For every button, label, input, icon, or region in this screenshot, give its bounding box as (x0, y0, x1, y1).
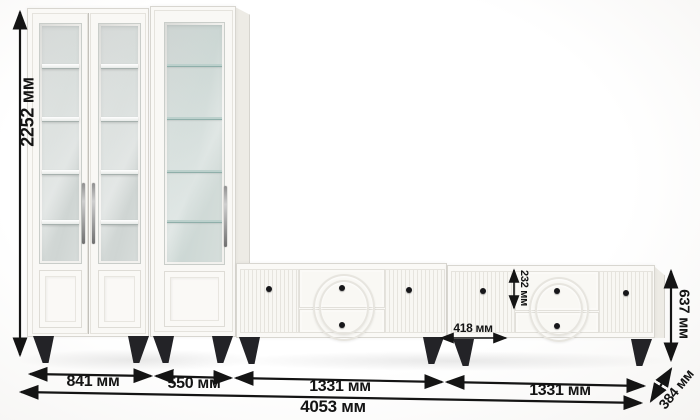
dim-total-width-label: 4053 мм (300, 397, 366, 417)
dim-drawer-height-label: 232 мм (518, 270, 530, 306)
dim-total-height-label: 2252 мм (18, 77, 39, 147)
dim-bookcase-single-label: 550 мм (167, 375, 220, 393)
dim-tv-right-label: 1331 мм (529, 382, 591, 400)
dim-tv-left-label: 1331 мм (309, 378, 371, 396)
dim-tv-door-width-label: 418 мм (453, 321, 492, 335)
diagram-canvas: 2252 мм 841 мм 550 мм 1331 мм 1331 мм 40… (0, 0, 700, 420)
dimension-lines (0, 0, 700, 420)
dim-tv-height-label: 637 мм (676, 289, 693, 339)
dim-bookcase-double-label: 841 мм (66, 373, 119, 391)
